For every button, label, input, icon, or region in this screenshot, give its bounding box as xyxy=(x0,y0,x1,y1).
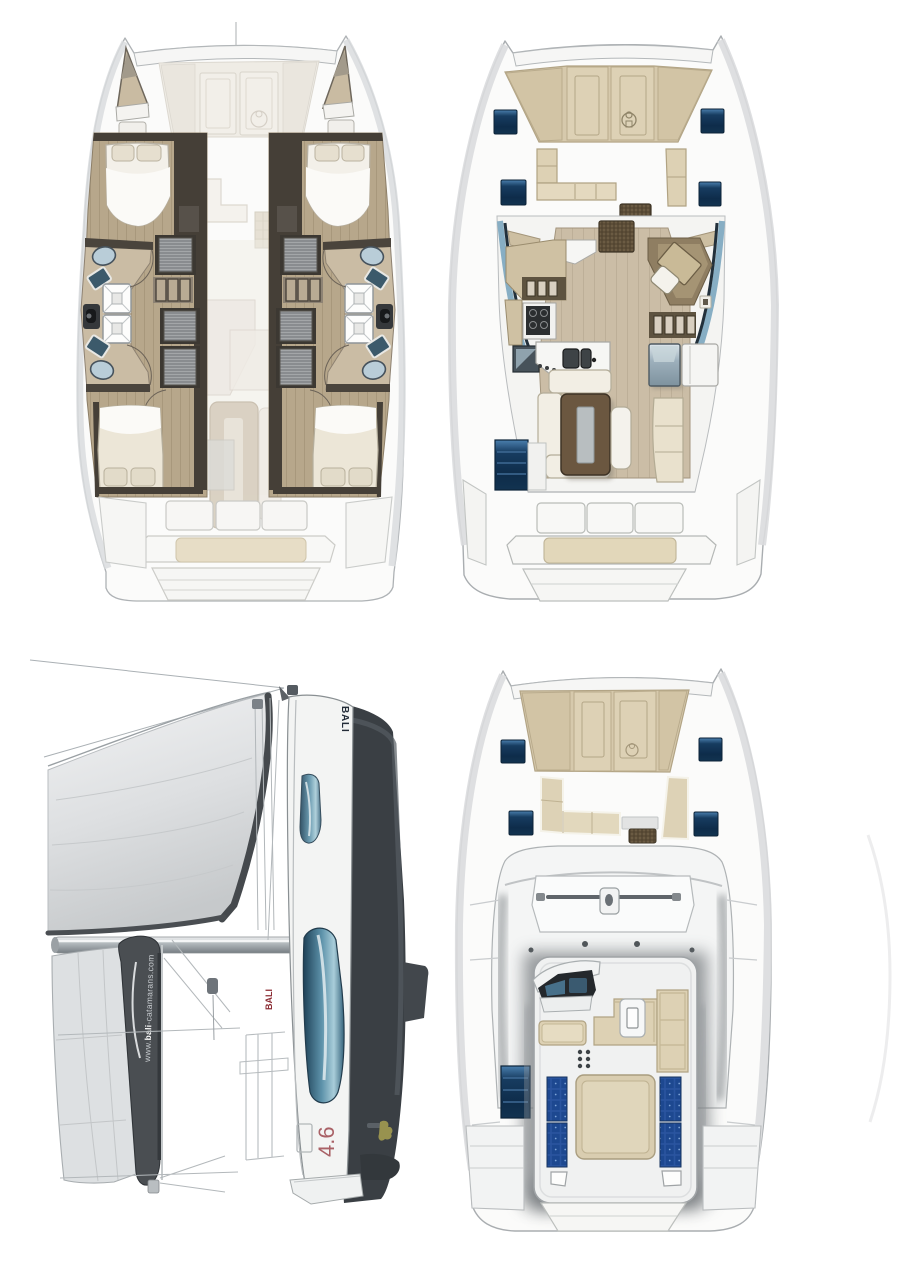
svg-text:BALI: BALI xyxy=(264,989,274,1010)
svg-text:4.6: 4.6 xyxy=(314,1126,339,1157)
svg-text:BALI: BALI xyxy=(339,706,350,733)
